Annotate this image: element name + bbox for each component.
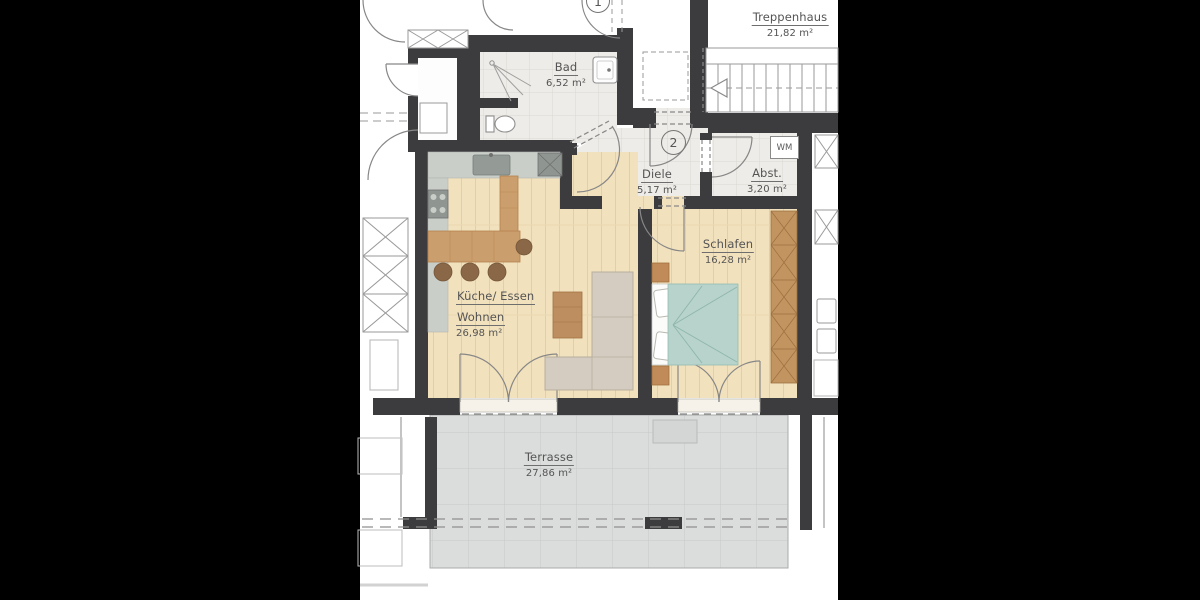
room-area: 27,86 m² <box>524 467 574 480</box>
room-name-line2: Wohnen <box>456 310 505 326</box>
room-label-wohnen: Küche/ Essen Wohnen 26,98 m² <box>456 285 535 340</box>
nightstand-bottom <box>652 366 669 385</box>
room-label-bad: Bad 6,52 m² <box>546 56 586 90</box>
room-name: Schlafen <box>702 237 754 253</box>
staircase <box>703 48 838 112</box>
left-radiator <box>370 340 398 390</box>
utility-fixture <box>420 103 447 133</box>
sideboard <box>553 292 582 338</box>
room-name: Terrasse <box>524 450 574 466</box>
room-label-abstellraum: Abst. 3,20 m² <box>747 162 787 196</box>
left-window-band <box>363 218 408 332</box>
unit-2-badge: 2 <box>661 130 686 155</box>
terrace-mat <box>653 420 697 443</box>
washing-machine-label: WM <box>770 136 799 159</box>
nightstand-top <box>652 263 669 282</box>
kitchen-appliance-icon <box>538 153 562 176</box>
room-label-diele: Diele 5,17 m² <box>637 163 677 197</box>
shaft-hatch-box <box>408 30 468 48</box>
room-area: 21,82 m² <box>752 27 829 40</box>
floor-plan-drawing <box>0 0 1200 600</box>
room-label-schlafen: Schlafen 16,28 m² <box>702 233 754 267</box>
room-area: 5,17 m² <box>637 184 677 197</box>
floor-plan-canvas: Treppenhaus 21,82 m² Bad 6,52 m² Diele 5… <box>0 0 1200 600</box>
bed-blanket <box>668 284 738 365</box>
room-name: Abst. <box>751 166 783 182</box>
wardrobe <box>771 211 797 383</box>
room-label-terrasse: Terrasse 27,86 m² <box>524 446 574 480</box>
room-name: Treppenhaus <box>752 10 829 26</box>
kitchen-sink-icon <box>473 153 510 175</box>
room-name: Bad <box>554 60 579 76</box>
room-label-treppenhaus: Treppenhaus 21,82 m² <box>752 6 829 40</box>
room-area: 6,52 m² <box>546 77 586 90</box>
room-area: 26,98 m² <box>456 327 535 340</box>
room-area: 3,20 m² <box>747 183 787 196</box>
entrance-threshold <box>656 108 690 130</box>
room-area: 16,28 m² <box>702 254 754 267</box>
bed <box>652 284 738 365</box>
room-name: Küche/ Essen <box>456 289 535 305</box>
terrace-floor <box>430 415 788 568</box>
stair-landing <box>706 48 838 64</box>
room-name: Diele <box>641 167 673 183</box>
toilet-icon <box>486 116 515 132</box>
bedroom-door-threshold <box>660 196 684 209</box>
stove-icon <box>428 190 448 218</box>
hall-living-passage <box>602 196 656 209</box>
washbasin-icon <box>593 57 617 83</box>
